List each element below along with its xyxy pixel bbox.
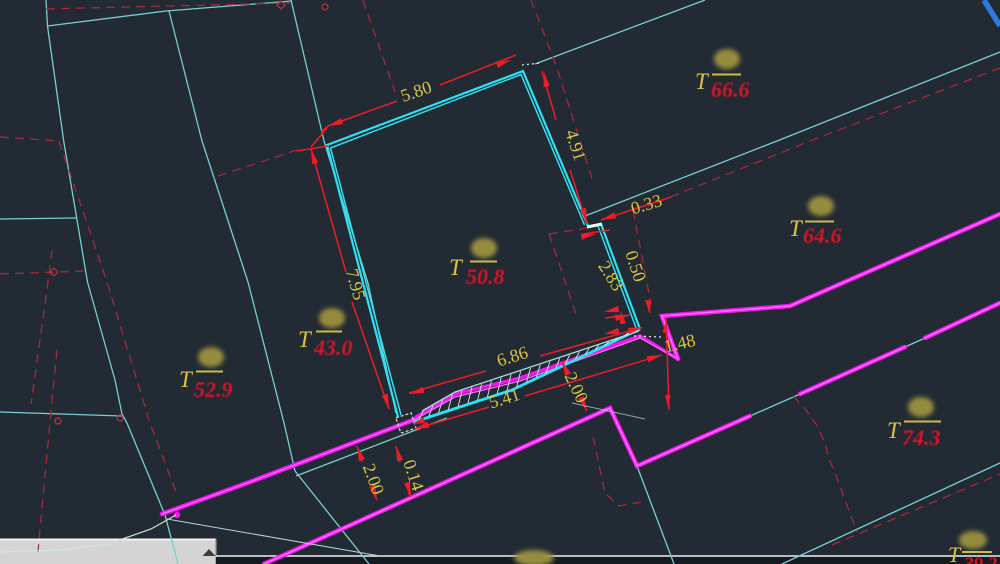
svg-text:T: T xyxy=(298,327,313,352)
svg-text:64.6: 64.6 xyxy=(803,223,842,248)
svg-text:39.2: 39.2 xyxy=(963,554,998,564)
svg-text:T: T xyxy=(887,418,902,443)
svg-text:T: T xyxy=(789,216,804,241)
svg-text:52.9: 52.9 xyxy=(194,377,233,402)
svg-text:50.8: 50.8 xyxy=(466,264,505,289)
svg-text:74.3: 74.3 xyxy=(902,425,941,450)
svg-text:43.0: 43.0 xyxy=(313,335,353,360)
svg-text:T: T xyxy=(695,69,710,94)
svg-text:66.6: 66.6 xyxy=(711,77,750,102)
svg-text:T: T xyxy=(449,255,464,280)
svg-text:T: T xyxy=(179,367,194,392)
svg-text:T: T xyxy=(948,542,962,564)
